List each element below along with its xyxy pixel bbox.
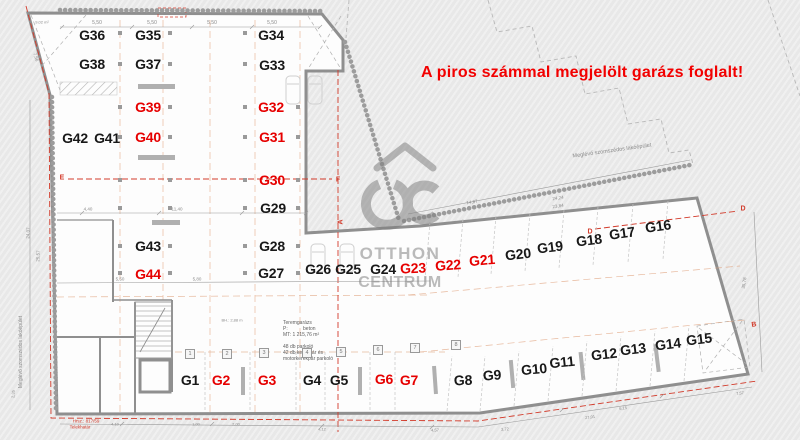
- occupied-notice-banner: A piros számmal megjelölt garázs foglalt…: [421, 64, 743, 82]
- garage-label-g21: G21: [468, 251, 495, 269]
- dimension-annotation: 1,00: [192, 422, 200, 427]
- dimension-annotation: Telekhatár: [70, 425, 91, 430]
- section-marker-f: F: [336, 177, 340, 184]
- dimension-annotation: 5,50: [207, 20, 217, 26]
- garage-label-g2: G2: [212, 372, 230, 388]
- garage-label-g25: G25: [335, 261, 361, 277]
- grid-bubble-7: 7: [410, 343, 420, 353]
- dimension-annotation: 24,07: [25, 227, 31, 239]
- dimension-annotation: 3,72: [501, 426, 509, 431]
- section-marker-e: E: [60, 175, 65, 182]
- garage-label-g12: G12: [590, 345, 617, 364]
- grid-bubble-6: 6: [373, 345, 383, 355]
- garage-label-g9: G9: [482, 366, 501, 383]
- dimension-annotation: Meglévő szomszédos lakóépület: [18, 316, 24, 388]
- garage-label-g10: G10: [520, 360, 547, 378]
- dimension-annotation: 25,57: [35, 250, 41, 262]
- garage-label-g42: G42: [62, 130, 88, 146]
- dimension-annotation: 7,57: [736, 390, 744, 396]
- garage-label-g20: G20: [504, 245, 531, 264]
- otthon-centrum-watermark: OTTHON CENTRUM: [352, 140, 448, 305]
- garage-label-g23: G23: [400, 260, 426, 277]
- grid-bubble-2: 2: [222, 349, 232, 359]
- section-marker-d: D: [587, 229, 592, 236]
- garage-label-g40: G40: [135, 129, 161, 145]
- garage-label-g14: G14: [654, 334, 682, 353]
- garage-floor-plan: OTTHON CENTRUM A piros számmal megjelölt…: [0, 0, 800, 440]
- garage-label-g22: G22: [435, 256, 462, 274]
- grid-bubble-5: 5: [336, 347, 346, 357]
- garage-label-g32: G32: [258, 99, 284, 115]
- dimension-annotation: BH.: 2,88 m: [221, 318, 242, 323]
- garage-label-g7: G7: [400, 372, 418, 388]
- garage-label-g36: G36: [79, 27, 105, 43]
- garage-label-g5: G5: [330, 372, 348, 388]
- dimension-annotation: 4,40: [84, 207, 93, 212]
- garage-label-g41: G41: [94, 130, 120, 146]
- garage-label-g34: G34: [258, 27, 284, 43]
- dimension-annotation: 4,57: [431, 427, 439, 432]
- dimension-annotation: 11,40: [172, 207, 183, 212]
- garage-label-g30: G30: [259, 172, 285, 188]
- otthon-centrum-logo-icon: [352, 140, 448, 240]
- dimension-annotation: 2,00: [232, 422, 240, 427]
- garage-label-g38: G38: [79, 56, 105, 72]
- dimension-annotation: 5,50: [116, 277, 125, 282]
- garage-label-g27: G27: [258, 265, 284, 281]
- garage-label-g6: G6: [375, 371, 393, 387]
- dimension-annotation: 6,15: [619, 405, 627, 411]
- watermark-text-centrum: CENTRUM: [352, 274, 448, 292]
- section-marker-d: D: [740, 206, 745, 213]
- garage-label-g19: G19: [536, 237, 564, 256]
- ramp-hatch: [60, 82, 117, 95]
- dimension-annotation: Hrsz.: 817/59: [73, 419, 100, 424]
- garage-label-g29: G29: [260, 200, 286, 216]
- garage-label-g39: G39: [135, 99, 161, 115]
- dimension-annotation: 2,35: [10, 390, 15, 398]
- garage-label-g15: G15: [685, 329, 713, 348]
- dimension-annotation: 5,50: [147, 20, 157, 26]
- garage-label-g43: G43: [135, 238, 161, 254]
- section-marker-b: B: [751, 321, 757, 329]
- dimension-annotation: 4,10: [111, 422, 119, 427]
- grid-bubble-4: 4: [302, 348, 312, 358]
- garage-label-g26: G26: [305, 261, 331, 277]
- grid-bubble-3: 3: [259, 348, 269, 358]
- dimension-annotation: 4,12: [318, 427, 326, 432]
- garage-label-g1: G1: [181, 372, 199, 388]
- grid-bubble-8: 8: [451, 340, 461, 350]
- grid-bubble-1: 1: [185, 349, 195, 359]
- garage-label-g35: G35: [135, 27, 161, 43]
- dimension-annotation: 5,80: [193, 277, 202, 282]
- garage-label-g28: G28: [259, 238, 285, 254]
- garage-label-g44: G44: [135, 266, 161, 282]
- garage-label-g31: G31: [259, 129, 285, 145]
- garage-label-g13: G13: [619, 339, 647, 358]
- garage-label-g37: G37: [135, 56, 161, 72]
- garage-label-g8: G8: [454, 372, 473, 389]
- section-marker-a: A: [338, 219, 345, 224]
- garage-label-g24: G24: [370, 261, 396, 277]
- dimension-annotation: 5,50: [267, 20, 277, 26]
- garage-label-g11: G11: [549, 353, 576, 372]
- garage-label-g3: G3: [258, 372, 276, 388]
- garage-label-g4: G4: [303, 372, 321, 388]
- dimension-annotation: 5,50: [92, 20, 102, 26]
- garage-label-g33: G33: [259, 57, 285, 73]
- dimension-annotation: 9,02 m²: [35, 20, 49, 25]
